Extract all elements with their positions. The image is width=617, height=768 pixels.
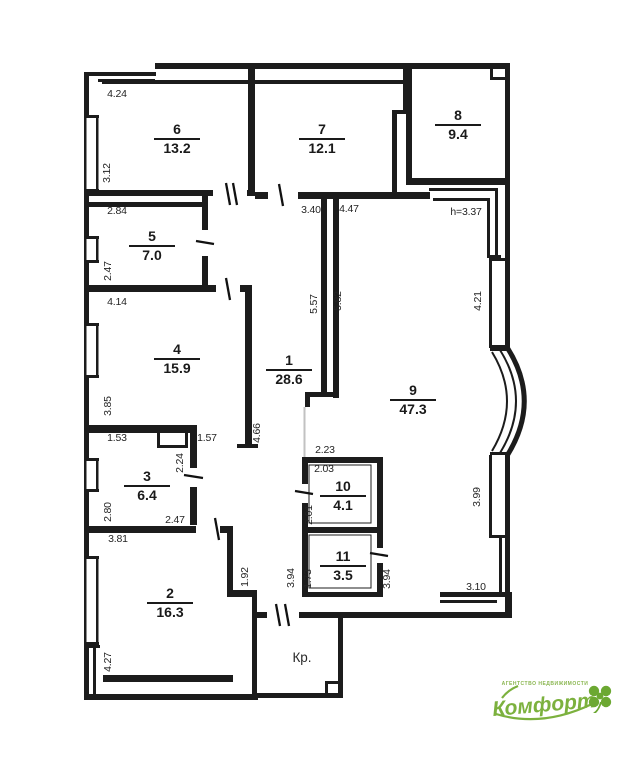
room-number: 5 — [148, 228, 156, 244]
floor-plan-page: 613.2712.189.457.0415.9128.6947.336.4104… — [0, 0, 617, 768]
room-area: 47.3 — [399, 401, 426, 417]
dimension-label: 2.47 — [165, 514, 185, 526]
room-number: 1 — [285, 352, 293, 368]
dimension-label: 3.10 — [466, 581, 486, 593]
room-number: 6 — [173, 121, 181, 137]
dimension-label: 3.94 — [381, 569, 393, 589]
room-number: 11 — [336, 548, 351, 564]
dimension-label: 2.01 — [303, 505, 315, 525]
room-label: 36.4 — [124, 468, 170, 503]
dimension-label: 2.24 — [174, 453, 186, 473]
dimension-label: 5.82 — [332, 291, 344, 311]
dimension-label: 2.84 — [107, 205, 127, 217]
room-label: 113.5 — [320, 548, 366, 583]
dimension-label: 3.99 — [471, 487, 483, 507]
dimension-label: 4.21 — [472, 291, 484, 311]
dimension-label: 1.73 — [302, 569, 314, 589]
dimension-label: 1.53 — [107, 432, 127, 444]
room-label: 57.0 — [129, 228, 175, 263]
dimension-label: 2.03 — [314, 463, 334, 475]
bay-window — [490, 348, 524, 455]
dimension-label: 2.23 — [315, 444, 335, 456]
logo-tagline: агентство недвижимости — [502, 681, 589, 687]
dimension-label: 4.24 — [107, 88, 127, 100]
dimension-label: 5.57 — [308, 294, 320, 314]
room-label: 613.2 — [154, 121, 200, 156]
room-area: 3.5 — [333, 567, 353, 583]
dimension-label: 4.66 — [251, 423, 263, 443]
room-label: 104.1 — [320, 478, 366, 513]
room-number: 2 — [166, 585, 174, 601]
dimension-label: 3.85 — [102, 396, 114, 416]
dimension-label: 4.14 — [107, 296, 127, 308]
dimension-label: 2.80 — [102, 502, 114, 522]
room-number: 4 — [173, 341, 181, 357]
room-label: 947.3 — [390, 382, 436, 417]
dimension-label: 4.47 — [339, 203, 359, 215]
dimension-label: 3.12 — [101, 163, 113, 183]
room-label: 89.4 — [435, 107, 481, 142]
room-number: 8 — [454, 107, 462, 123]
room-area: 28.6 — [275, 371, 302, 387]
room-area: 6.4 — [137, 487, 157, 503]
room-label: 712.1 — [299, 121, 345, 156]
agency-logo: агентство недвижимости Комфорт — [490, 674, 617, 732]
room-label: 216.3 — [147, 585, 193, 620]
dimension-label: 3.40 — [301, 204, 321, 216]
room-area: 12.1 — [308, 140, 335, 156]
room-label: 415.9 — [154, 341, 200, 376]
room-number: 7 — [318, 121, 326, 137]
door-marks — [184, 183, 388, 626]
room-area: 4.1 — [333, 497, 353, 513]
room-number: 9 — [409, 382, 417, 398]
room-area: 7.0 — [142, 247, 162, 263]
room-label: 128.6 — [266, 352, 312, 387]
dimension-label: h=3.37 — [450, 206, 482, 218]
room-number: 10 — [335, 478, 351, 494]
dimension-label: 3.94 — [285, 568, 297, 588]
room-area: 16.3 — [156, 604, 183, 620]
room-number: 3 — [143, 468, 151, 484]
dimension-label: 2.47 — [102, 261, 114, 281]
porch-label: Кр. — [292, 650, 311, 665]
room-area: 13.2 — [163, 140, 190, 156]
dimension-label: 3.81 — [108, 533, 128, 545]
dimension-label: 1.92 — [239, 567, 251, 587]
floor-plan: 613.2712.189.457.0415.9128.6947.336.4104… — [0, 0, 617, 768]
room-area: 9.4 — [448, 126, 468, 142]
room-area: 15.9 — [163, 360, 190, 376]
dimension-label: 1.57 — [197, 432, 217, 444]
dimension-label: 4.27 — [102, 652, 114, 672]
